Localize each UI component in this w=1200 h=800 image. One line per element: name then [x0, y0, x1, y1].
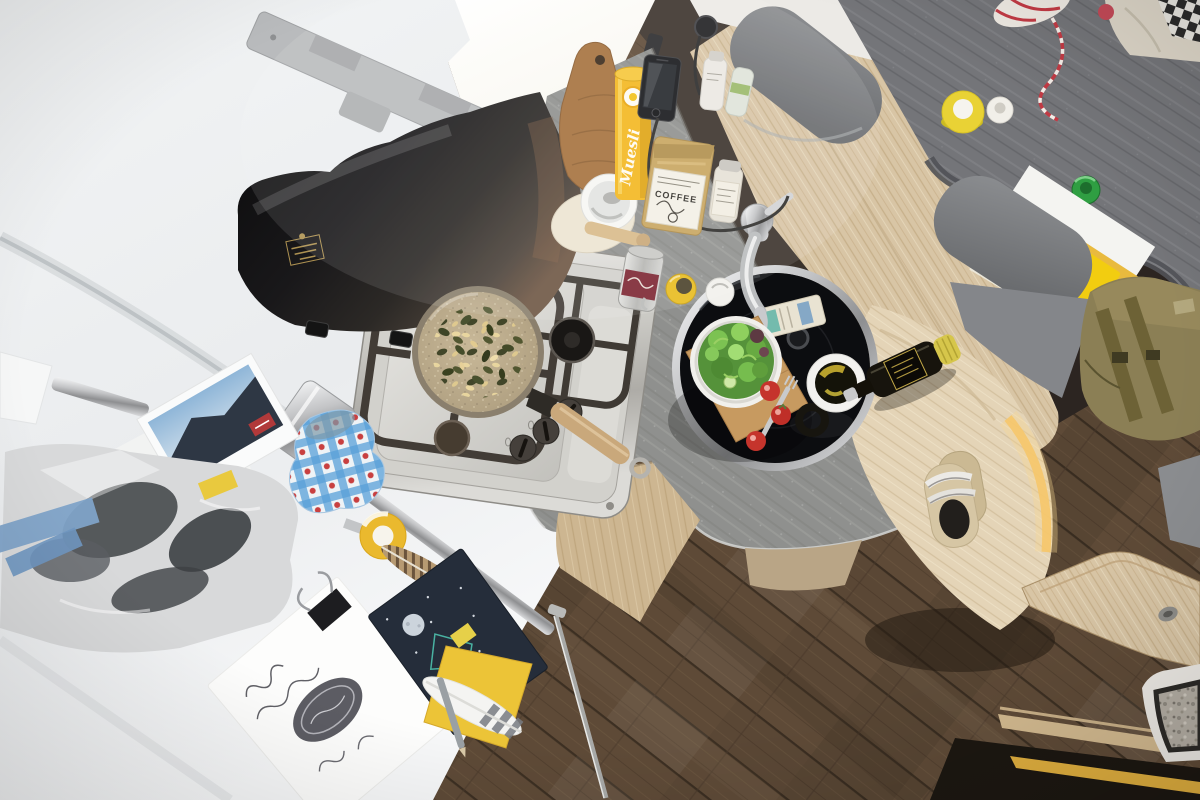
scene-canvas: Muesli COFFEE — [0, 0, 1200, 800]
vignette — [0, 0, 1200, 800]
camper-kitchen-photo: Muesli COFFEE — [0, 0, 1200, 800]
